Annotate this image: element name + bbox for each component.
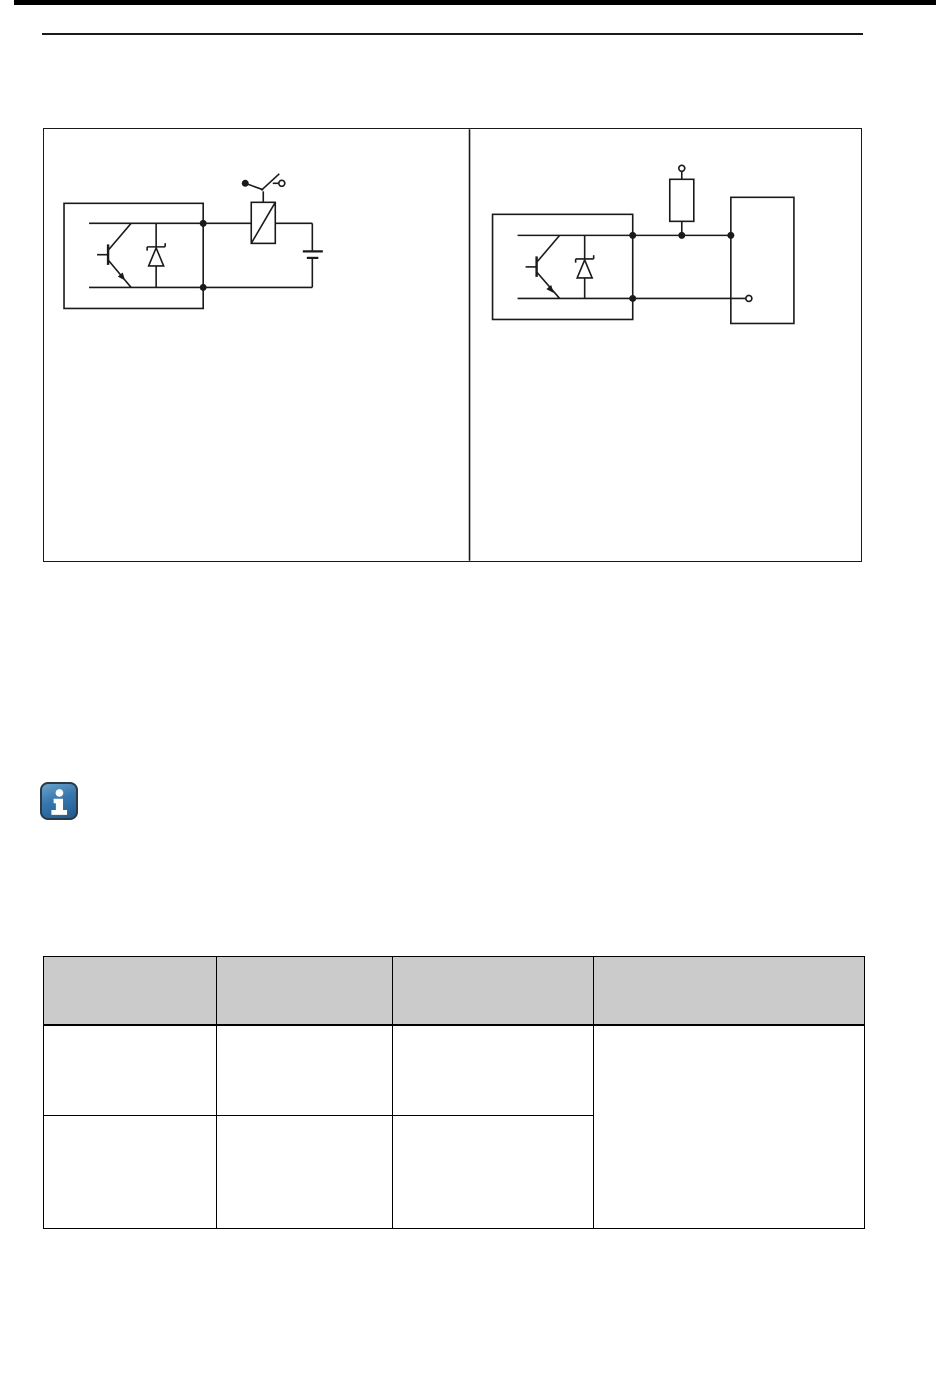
junction-dot bbox=[629, 232, 636, 239]
load-open-terminal bbox=[746, 295, 752, 301]
info-icon-glyph bbox=[42, 784, 76, 818]
header-rule bbox=[42, 33, 863, 35]
table-cell bbox=[217, 1116, 393, 1229]
table-cell bbox=[44, 1116, 217, 1229]
junction-dot bbox=[200, 220, 207, 227]
transistor-collector bbox=[537, 235, 560, 262]
transistor-collector bbox=[108, 223, 131, 250]
optocoupler-box bbox=[493, 214, 633, 319]
relay-output-circuit bbox=[64, 174, 323, 309]
info-icon bbox=[40, 782, 78, 820]
table-header-cell bbox=[393, 957, 594, 1026]
switch-open-terminal bbox=[279, 180, 285, 186]
switch-lead bbox=[245, 183, 263, 190]
table-row bbox=[44, 1025, 865, 1116]
page-top-bar bbox=[14, 0, 936, 5]
junction-dot bbox=[678, 232, 685, 239]
junction-dot bbox=[200, 284, 207, 291]
supply-open-terminal bbox=[679, 165, 685, 171]
table-header-row bbox=[44, 957, 865, 1026]
switch-blade bbox=[261, 174, 279, 191]
load-box bbox=[731, 197, 794, 323]
optocoupler-box bbox=[64, 203, 203, 308]
transistor-emitter bbox=[108, 260, 131, 288]
table-cell bbox=[44, 1025, 217, 1116]
table-header-cell bbox=[217, 957, 393, 1026]
circuit-diagrams bbox=[44, 129, 861, 561]
table-header-cell bbox=[594, 957, 865, 1026]
circuit-figure bbox=[43, 128, 862, 562]
junction-dot bbox=[727, 232, 734, 239]
emitter-arrow bbox=[546, 285, 553, 293]
transistor-emitter bbox=[537, 272, 560, 299]
table-header-cell bbox=[44, 957, 217, 1026]
table-cell bbox=[217, 1025, 393, 1116]
table-cell-rowspan bbox=[594, 1025, 865, 1229]
table-cell bbox=[393, 1025, 594, 1116]
zener-triangle bbox=[149, 248, 164, 266]
switch-contact-dot bbox=[242, 180, 249, 187]
junction-dot bbox=[629, 295, 636, 302]
resistor bbox=[670, 179, 694, 221]
transistor-output-circuit bbox=[493, 165, 794, 323]
table-cell bbox=[393, 1116, 594, 1229]
zener-triangle bbox=[577, 260, 592, 278]
spec-table bbox=[43, 956, 865, 1229]
